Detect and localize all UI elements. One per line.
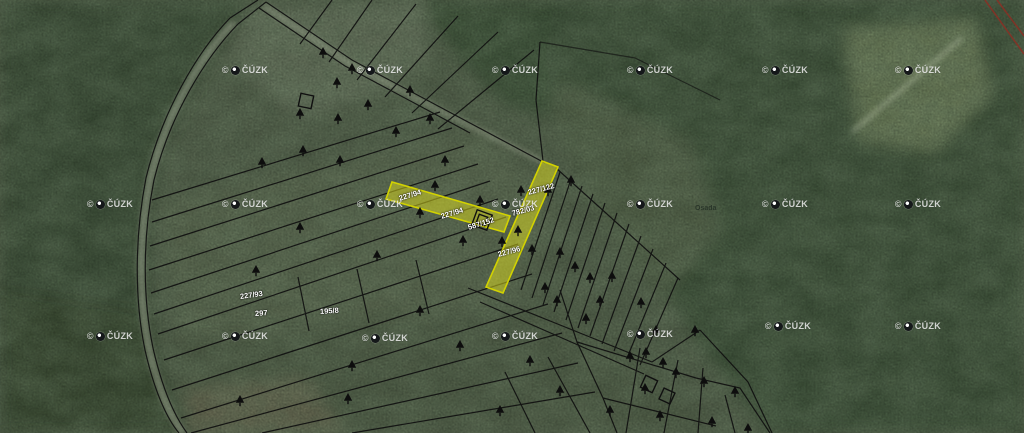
cadastral-map-canvas: [0, 0, 1024, 433]
aerial-imagery-layer: [0, 0, 1024, 433]
map-viewport[interactable]: ©ČÚZK©ČÚZK©ČÚZK©ČÚZK©ČÚZK©ČÚZK©ČÚZK©ČÚZK…: [0, 0, 1024, 433]
